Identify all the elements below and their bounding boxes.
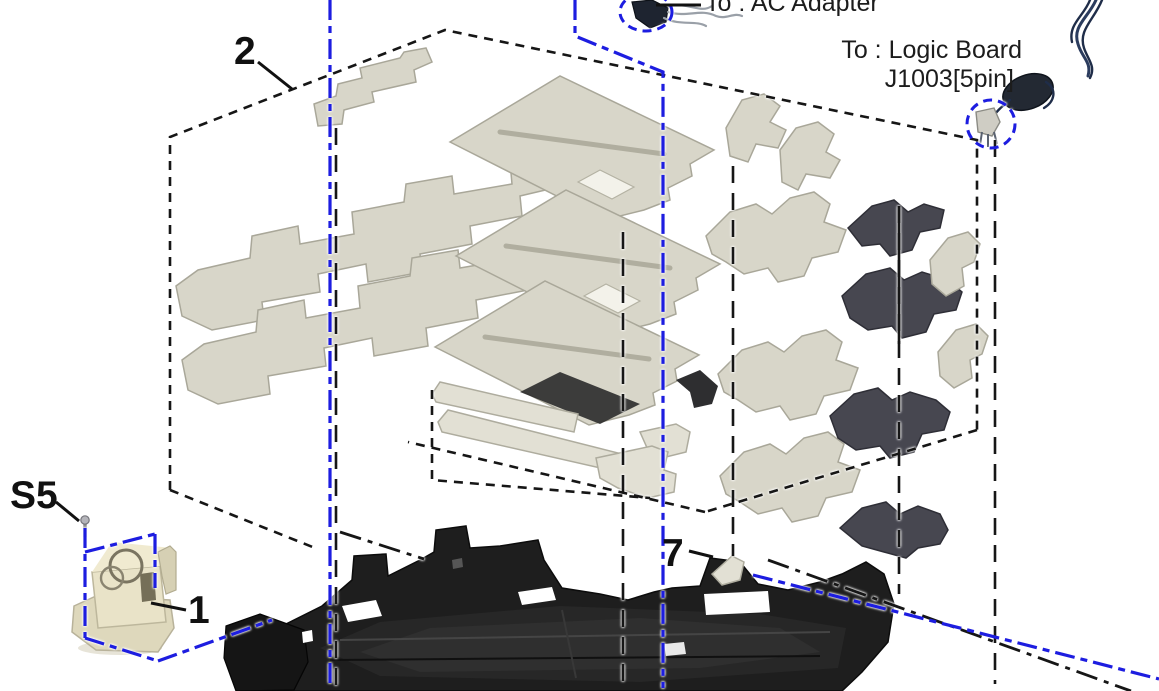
ac-adapter-annotation: To : AC Adapter: [705, 0, 879, 17]
logic-board-annotation-line1: To : Logic Board: [841, 36, 1022, 64]
foam-plus-b: [780, 122, 840, 190]
chassis-cutout-5: [664, 642, 686, 656]
chassis-cutout-4: [302, 630, 313, 643]
enclosure-left-drop-edge: [170, 490, 315, 548]
foam-plus-a: [726, 94, 786, 162]
chassis-cutout-3: [704, 591, 770, 615]
foam-stepped-e: [720, 432, 860, 522]
logic-cable-strand-3: [1071, 0, 1090, 42]
leader-callout-2: [258, 62, 292, 89]
exploded-view-diagram: 2 S5 1 7 To : AC Adapter To : Logic Boar…: [0, 0, 1159, 691]
foam-stepped-c: [706, 192, 846, 282]
callout-s5-label: S5: [10, 474, 58, 517]
callout-7-label: 7: [662, 532, 684, 575]
cables-group: [632, 0, 1102, 147]
foam-top-bar: [314, 48, 432, 126]
dark-foam-cross-1: [848, 200, 944, 256]
foam-overlay-1: [930, 232, 980, 296]
logic-cable-strand-2: [1083, 0, 1102, 78]
callout-2-label: 2: [234, 30, 256, 73]
screw-head: [81, 516, 89, 524]
foam-stepped-d: [718, 330, 858, 420]
foam-overlay-2: [938, 324, 988, 388]
power-entry-module: [72, 516, 176, 655]
foam-parts-group: [176, 48, 988, 585]
dark-foam-cross-3: [830, 388, 950, 458]
dark-foam-cross-4: [840, 502, 948, 558]
bottom-case-chassis: [224, 526, 894, 691]
sheet-3-hook: [676, 370, 718, 408]
callout-1-label: 1: [188, 589, 210, 632]
leader-callout-7: [689, 551, 713, 557]
logic-board-connector-icon: [976, 108, 1000, 136]
leader-callout-s5: [56, 502, 79, 521]
logic-cable-strand-1: [1077, 0, 1096, 76]
logic-board-annotation-line2: J1003[5pin]: [885, 65, 1014, 93]
